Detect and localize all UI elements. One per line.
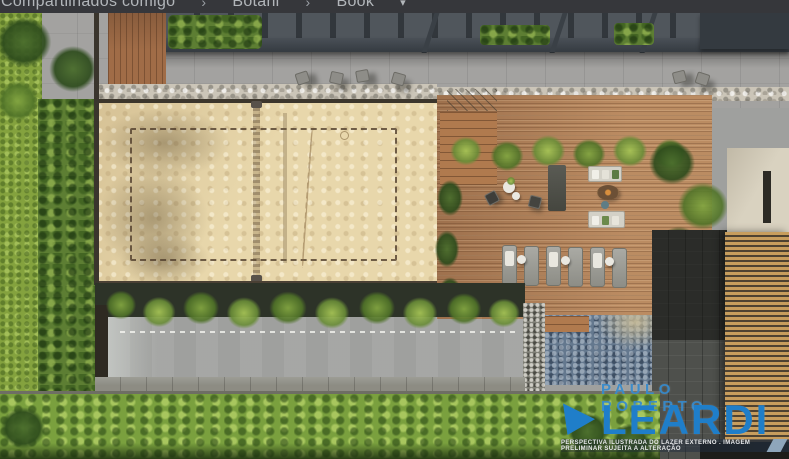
hedge-row: [38, 99, 98, 393]
breadcrumb-bar: Compartilhados comigo › Botani › Book ▾: [0, 0, 789, 13]
sun-lounger: [612, 248, 627, 288]
palm-frond: [220, 291, 268, 335]
pillow: [602, 170, 609, 179]
deck-bush: [430, 223, 464, 275]
palm-frond: [308, 291, 356, 335]
sand-logo-mark: [340, 131, 349, 140]
pillow: [602, 216, 609, 225]
pillow: [592, 216, 599, 225]
towel: [593, 253, 602, 268]
dropdown-arrow-icon[interactable]: ▾: [400, 0, 406, 9]
stone-shallow: [596, 315, 652, 349]
terrace-chair: [355, 69, 370, 83]
side-table: [605, 257, 614, 266]
pool-steps: [545, 316, 589, 332]
pergola-corner: [700, 13, 789, 49]
pillow: [612, 170, 619, 179]
sun-lounger: [546, 246, 561, 286]
breadcrumb-file-book[interactable]: Book: [337, 0, 375, 11]
sun-lounger: [590, 247, 605, 287]
sun-lounger: [568, 247, 583, 287]
pergola-shadow: [160, 52, 789, 68]
palm-frond: [136, 291, 182, 333]
palm-frond: [352, 285, 402, 331]
building-window: [763, 171, 771, 223]
potted-plant: [505, 175, 517, 187]
outdoor-sofa: [588, 166, 622, 182]
shrub-planter: [168, 15, 262, 49]
screenshot-root: Compartilhados comigo › Botani › Book ▾: [0, 0, 789, 459]
boundary-wall: [94, 13, 99, 285]
palm-frond: [396, 291, 444, 335]
watermark-brand: LEARDI: [601, 399, 769, 441]
terrace-chair: [329, 71, 344, 85]
pool-divider: [523, 303, 545, 393]
pillow: [612, 216, 619, 225]
breadcrumb: Compartilhados comigo › Botani › Book ▾: [0, 0, 789, 11]
chevron-right-icon: ›: [306, 0, 311, 10]
outdoor-sofa: [588, 211, 625, 228]
palm-frond: [262, 285, 314, 331]
aerial-render-image: PAULO ROBERTO LEARDI PERSPECTIVA ILUSTRA…: [0, 13, 789, 459]
palm-frond: [482, 293, 526, 333]
fire-pit-table: [597, 185, 619, 200]
palm-frond: [440, 287, 488, 331]
breadcrumb-folder-botani[interactable]: Botani: [232, 0, 279, 11]
daybed: [548, 165, 566, 211]
watermark-caption: PERSPECTIVA ILUSTRADA DO LAZER EXTERNO .…: [561, 439, 789, 452]
volleyball-net: [253, 105, 260, 279]
palm-plant: [484, 135, 530, 177]
pool-shower-rack: [447, 89, 497, 111]
palm-frond: [176, 285, 226, 331]
building-shadow: [652, 230, 727, 340]
net-shadow: [283, 113, 287, 263]
breadcrumb-shared-with-me[interactable]: Compartilhados comigo: [1, 0, 175, 11]
building-volume: [727, 148, 789, 232]
roof-planter: [614, 23, 654, 45]
net-post: [251, 101, 262, 108]
palm-plant: [444, 131, 488, 171]
sun-lounger: [524, 246, 539, 286]
towel: [549, 252, 558, 267]
palm-frond: [100, 285, 142, 325]
side-table: [512, 192, 520, 200]
pillow: [592, 170, 599, 179]
roof-planter: [480, 25, 550, 45]
sun-lounger: [502, 245, 517, 285]
deck-bush: [432, 173, 468, 223]
garden-stool: [601, 201, 609, 209]
side-table: [561, 256, 570, 265]
chevron-right-icon: ›: [201, 0, 206, 10]
court-boundary-line: [130, 128, 397, 261]
towel: [505, 251, 514, 266]
side-table: [517, 255, 526, 264]
